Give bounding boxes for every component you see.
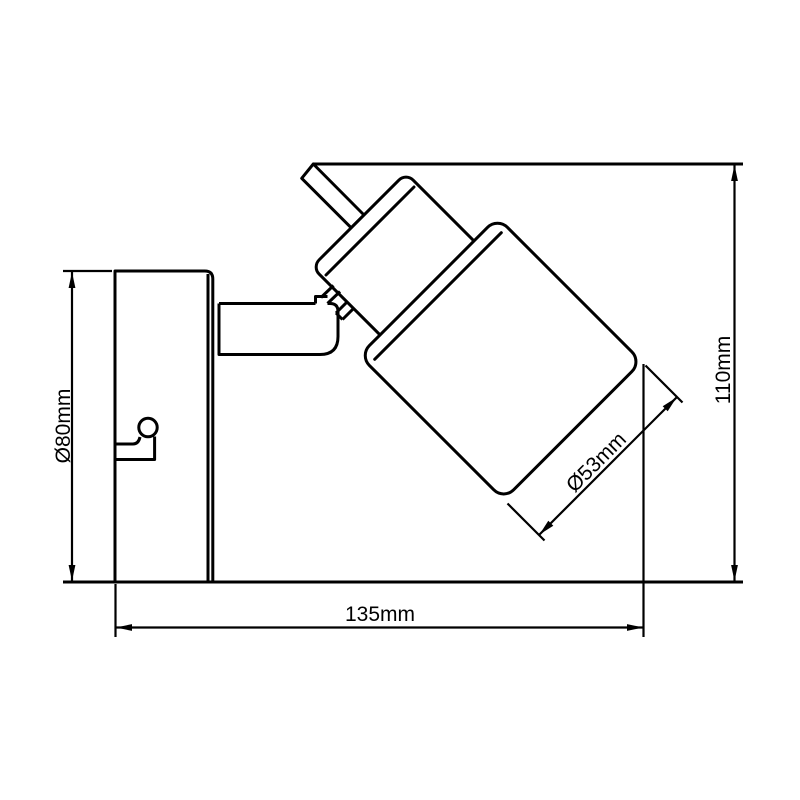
arrow-right-icon — [627, 624, 643, 631]
dim-label-overall-height: 110mm — [712, 336, 735, 404]
stem-rod — [302, 164, 364, 228]
switch-knob — [139, 418, 157, 436]
mounting-arm — [219, 304, 338, 355]
arrow-down-icon — [731, 565, 738, 581]
spotlight-dimension-diagram: Ø80mm 135mm 110mm Ø53mm — [0, 0, 800, 800]
arrow-up-icon — [69, 272, 76, 288]
dim-label-overall-width: 135mm — [345, 603, 415, 626]
dimension-plate-diameter: Ø80mm — [52, 271, 112, 582]
arrow-down-icon — [69, 565, 76, 581]
toggle-switch — [115, 418, 157, 459]
arrow-left-icon — [116, 624, 132, 631]
dimension-overall-height: 110mm — [712, 164, 738, 582]
technical-drawing-page: Ø80mm 135mm 110mm Ø53mm — [0, 0, 800, 800]
arrow-up-icon — [731, 165, 738, 181]
wall-plate — [115, 271, 213, 582]
dim-label-plate-diameter: Ø80mm — [52, 389, 75, 464]
dim-label-shade-diameter: Ø53mm — [562, 428, 631, 497]
